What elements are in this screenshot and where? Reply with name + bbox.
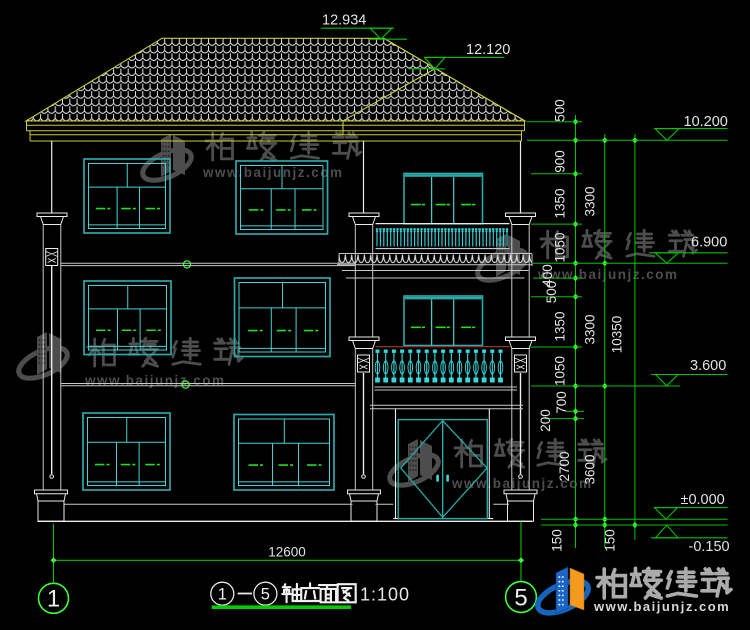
svg-text:3.600: 3.600 xyxy=(690,358,726,374)
svg-text:www.baijunjz.com: www.baijunjz.com xyxy=(537,267,679,282)
svg-text:5: 5 xyxy=(514,584,527,611)
svg-text:150: 150 xyxy=(550,529,565,552)
svg-text:1: 1 xyxy=(47,586,60,613)
svg-text:10350: 10350 xyxy=(610,316,625,354)
svg-text:500: 500 xyxy=(544,281,559,304)
svg-text:3300: 3300 xyxy=(583,186,598,216)
svg-text:700: 700 xyxy=(554,391,569,414)
svg-text:5: 5 xyxy=(261,586,270,604)
svg-text:500: 500 xyxy=(553,99,568,122)
svg-text:3600: 3600 xyxy=(583,454,598,484)
svg-text:900: 900 xyxy=(553,150,568,173)
svg-text:-0.150: -0.150 xyxy=(689,539,730,555)
svg-text:12600: 12600 xyxy=(268,545,306,560)
svg-text:www.baijunjz.com: www.baijunjz.com xyxy=(593,599,730,614)
svg-text:1050: 1050 xyxy=(553,356,568,386)
svg-text:12.934: 12.934 xyxy=(322,13,366,29)
svg-text:3300: 3300 xyxy=(583,314,598,344)
svg-text:1: 1 xyxy=(218,586,227,604)
svg-text:10.200: 10.200 xyxy=(684,114,728,130)
svg-text:150: 150 xyxy=(603,529,618,552)
svg-text:12.120: 12.120 xyxy=(466,42,510,58)
svg-text:6.900: 6.900 xyxy=(691,235,727,251)
svg-text:1:100: 1:100 xyxy=(360,585,410,605)
svg-text:www.baijunjz.com: www.baijunjz.com xyxy=(202,165,344,180)
svg-text:1350: 1350 xyxy=(553,311,568,341)
svg-text:±0.000: ±0.000 xyxy=(681,492,725,508)
svg-text:1050: 1050 xyxy=(553,232,568,262)
svg-text:1350: 1350 xyxy=(553,188,568,218)
svg-text:200: 200 xyxy=(538,409,553,432)
svg-text:2700: 2700 xyxy=(557,451,572,481)
